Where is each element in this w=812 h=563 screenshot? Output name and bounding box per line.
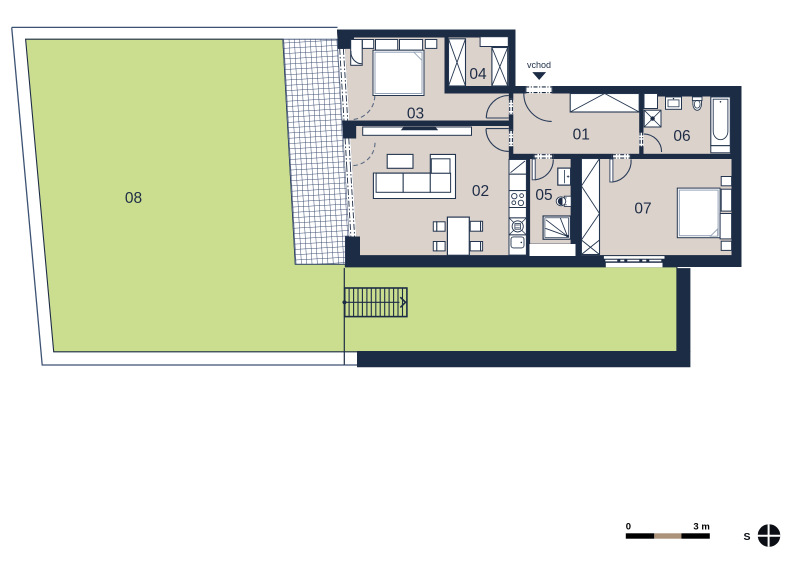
svg-text:05: 05 xyxy=(535,187,552,204)
svg-text:S: S xyxy=(743,531,750,543)
svg-text:08: 08 xyxy=(125,190,142,207)
svg-text:02: 02 xyxy=(472,183,489,200)
svg-text:06: 06 xyxy=(673,128,690,145)
svg-text:03: 03 xyxy=(407,105,424,122)
svg-text:3 m: 3 m xyxy=(693,522,709,533)
svg-text:vchod: vchod xyxy=(527,60,551,70)
svg-text:04: 04 xyxy=(469,66,487,83)
svg-text:01: 01 xyxy=(573,126,590,143)
svg-text:07: 07 xyxy=(634,201,651,218)
svg-text:0: 0 xyxy=(626,522,631,533)
